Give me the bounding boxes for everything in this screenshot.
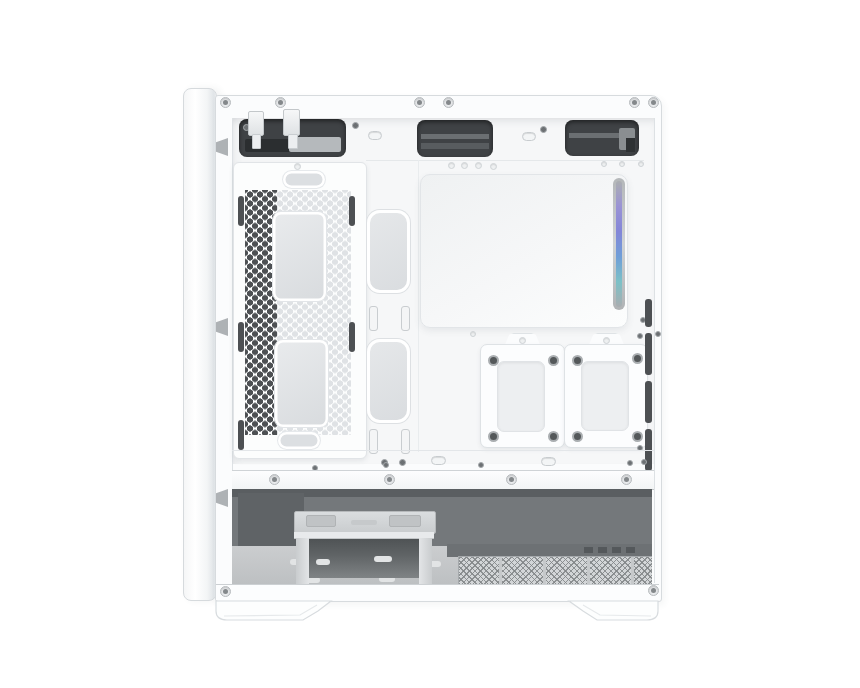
cover-grommet	[275, 340, 328, 427]
rivet-screw	[443, 97, 454, 108]
screw	[352, 122, 359, 129]
psu-dust-filter-mesh	[458, 556, 652, 584]
cable-tie-slot	[369, 306, 378, 331]
rivet-screw	[621, 474, 632, 485]
ssd-tray-screw	[632, 353, 643, 364]
screw-hole	[475, 162, 482, 169]
screw-hole	[601, 161, 607, 167]
cable-grommet	[367, 210, 410, 293]
thumbscrew-hole	[294, 163, 301, 170]
side-vent-slot	[645, 381, 652, 423]
oval-cutout	[541, 457, 556, 466]
ssd-tray-screw	[572, 431, 583, 442]
ssd-tray-screw	[488, 355, 499, 366]
mesh-rib	[631, 557, 634, 584]
screw-hole	[619, 161, 625, 167]
wall-dash	[612, 547, 621, 553]
front-bezel	[183, 88, 217, 601]
vent-slot	[238, 322, 244, 352]
side-vent-slot	[645, 299, 652, 327]
screw	[540, 126, 547, 133]
front-mounting-panel	[420, 174, 628, 328]
screw-hole	[448, 162, 455, 169]
rivet-screw	[629, 97, 640, 108]
mesh-rib	[587, 557, 590, 584]
case-feet	[0, 596, 860, 628]
rivet-screw	[648, 97, 659, 108]
cutout-slat	[421, 143, 489, 149]
drive-cage-leg	[419, 538, 432, 585]
tray-fold-line	[232, 450, 654, 451]
rivet-screw	[384, 474, 395, 485]
screw-hole	[461, 162, 468, 169]
vent-slot	[238, 196, 244, 226]
drive-cage-leg	[296, 538, 309, 585]
screw	[478, 462, 484, 468]
plate-slot	[351, 520, 377, 525]
frame-edge-line	[654, 118, 655, 583]
cable-grommet	[367, 339, 410, 423]
top-cable-cutout	[417, 120, 493, 157]
left-foot	[216, 601, 331, 620]
rivet-screw	[269, 474, 280, 485]
ssd-tray-recess	[497, 361, 545, 432]
cable-tie-slot	[401, 306, 410, 331]
floor-cutout	[374, 556, 392, 562]
vent-slot	[349, 322, 355, 352]
tab-hole	[603, 337, 610, 344]
ssd-tray-screw	[632, 431, 643, 442]
screw	[641, 459, 647, 465]
front-panel-cable-connector	[283, 109, 300, 136]
ssd-tray-recess	[581, 361, 629, 431]
wall-dash	[584, 547, 593, 553]
drive-cage-lip	[294, 532, 434, 539]
tab-hole	[519, 337, 526, 344]
wall-dash	[626, 547, 635, 553]
vent-slot	[238, 420, 244, 450]
right-foot	[569, 601, 658, 620]
screw	[627, 460, 633, 466]
screw-hole	[490, 163, 497, 170]
rivet-screw	[275, 97, 286, 108]
plate-cutout	[389, 515, 421, 527]
rivet-screw	[506, 474, 517, 485]
cover-grommet	[273, 212, 326, 301]
cutout-notch	[626, 138, 635, 152]
rivet-screw	[648, 585, 659, 596]
mesh-rib	[543, 557, 546, 584]
oval-cutout	[431, 456, 446, 465]
screw	[637, 333, 643, 339]
ssd-tray-screw	[548, 431, 559, 442]
front-panel-cable	[288, 134, 298, 149]
screw	[383, 462, 389, 468]
rivet-screw	[414, 97, 425, 108]
rivet-screw	[220, 97, 231, 108]
psu-shroud-rail	[232, 470, 654, 490]
screw-hole	[470, 331, 476, 337]
ssd-tray-screw	[488, 431, 499, 442]
front-panel-cable	[252, 134, 261, 149]
cover-handle-cutout	[283, 171, 325, 188]
screw	[399, 459, 406, 466]
vent-slot	[349, 196, 355, 226]
wall-dash	[598, 547, 607, 553]
screw-hole	[638, 161, 644, 167]
front-panel-cable-connector	[248, 111, 264, 136]
oval-cutout	[522, 132, 536, 141]
screw	[655, 331, 661, 337]
cover-handle-cutout	[278, 432, 320, 449]
tray-crease	[418, 160, 419, 452]
pc-case-photo	[0, 0, 860, 688]
plate-cutout	[306, 515, 336, 527]
drive-cage-plate	[294, 511, 436, 534]
floor-cutout	[316, 559, 330, 565]
cutout-slat	[421, 134, 489, 139]
argb-strip	[616, 181, 622, 307]
oval-cutout	[368, 131, 382, 140]
mesh-rib	[499, 557, 502, 584]
drive-cage-interior	[309, 537, 420, 578]
ssd-tray-screw	[548, 355, 559, 366]
ssd-tray-screw	[572, 355, 583, 366]
side-vent-slot	[645, 333, 652, 375]
top-cable-cutout	[565, 120, 639, 156]
